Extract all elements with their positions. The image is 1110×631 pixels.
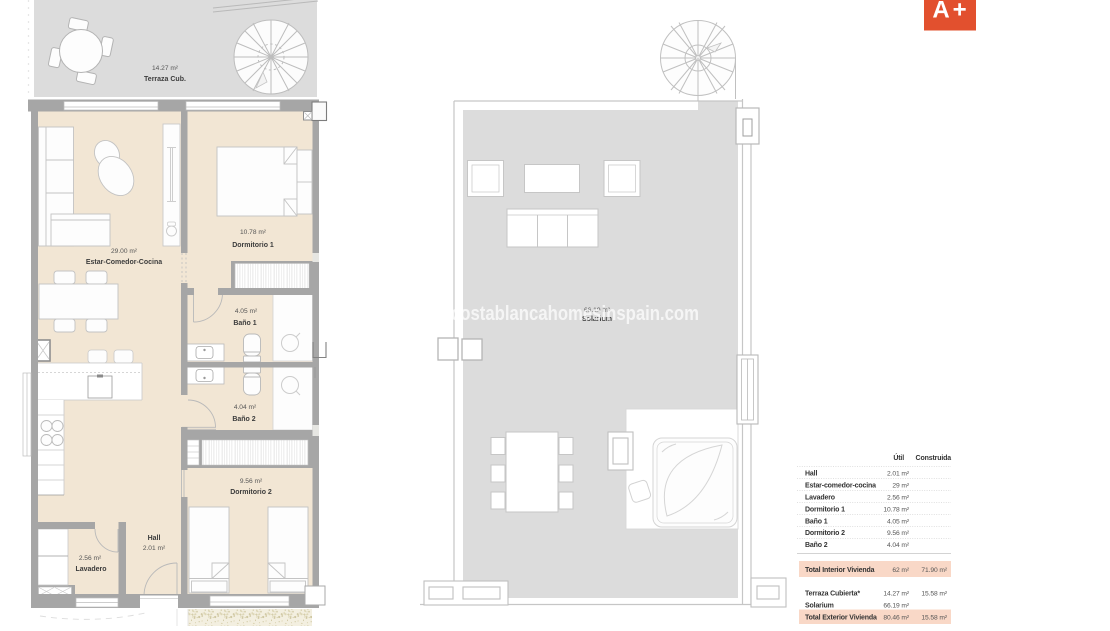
svg-text:Dormitorio 1: Dormitorio 1 [805,507,845,514]
svg-text:Dormitorio 2: Dormitorio 2 [805,530,845,537]
svg-text:Hall: Hall [805,471,817,478]
svg-text:Baño 2: Baño 2 [805,542,828,549]
svg-text:9.56 m²: 9.56 m² [240,478,263,485]
svg-text:Total Exterior Vivienda: Total Exterior Vivienda [805,615,877,622]
svg-text:4.05 m²: 4.05 m² [235,308,258,315]
svg-text:15.58 m²: 15.58 m² [921,591,947,598]
svg-text:29.00 m²: 29.00 m² [111,248,138,255]
svg-text:Estar-Comedor-Cocina: Estar-Comedor-Cocina [86,259,162,266]
svg-text:2.01 m²: 2.01 m² [143,545,166,552]
svg-text:10.78 m²: 10.78 m² [240,229,267,236]
svg-text:Terraza Cub.: Terraza Cub. [144,76,186,83]
svg-text:80.46 m²: 80.46 m² [883,615,909,622]
svg-text:Baño 1: Baño 1 [233,320,256,327]
svg-text:4.04 m²: 4.04 m² [234,404,257,411]
svg-text:9.56 m²: 9.56 m² [887,530,910,537]
svg-text:Estar-comedor-cocina: Estar-comedor-cocina [805,483,876,490]
svg-text:2.56 m²: 2.56 m² [79,555,102,562]
svg-text:62 m²: 62 m² [892,567,909,574]
svg-text:Hall: Hall [148,535,161,542]
svg-text:costablancahomesinspain.com: costablancahomesinspain.com [451,303,699,325]
svg-text:29 m²: 29 m² [892,483,909,490]
svg-text:4.04 m²: 4.04 m² [887,542,910,549]
svg-text:10.78 m²: 10.78 m² [883,507,909,514]
svg-text:A+: A+ [932,0,969,24]
svg-text:14.27 m²: 14.27 m² [883,591,909,598]
svg-text:2.01 m²: 2.01 m² [887,471,910,478]
svg-text:Dormitorio 2: Dormitorio 2 [230,489,272,496]
svg-text:71.90 m²: 71.90 m² [921,567,947,574]
svg-text:Lavadero: Lavadero [75,566,106,573]
svg-text:Dormitorio 1: Dormitorio 1 [232,242,274,249]
svg-text:Solarium: Solarium [805,603,834,610]
svg-text:4.05 m²: 4.05 m² [887,519,910,526]
svg-text:14.27 m²: 14.27 m² [152,65,179,72]
svg-text:2.56 m²: 2.56 m² [887,495,910,502]
svg-text:Baño 2: Baño 2 [232,416,255,423]
svg-text:Baño 1: Baño 1 [805,519,828,526]
svg-text:Terraza Cubierta*: Terraza Cubierta* [805,591,860,598]
svg-text:Construida: Construida [916,455,952,462]
svg-text:Útil: Útil [893,453,904,462]
svg-text:66.19 m²: 66.19 m² [883,603,909,610]
svg-text:Lavadero: Lavadero [805,495,835,502]
svg-text:15.58 m²: 15.58 m² [921,615,947,622]
svg-text:Total Interior Vivienda: Total Interior Vivienda [805,567,875,574]
